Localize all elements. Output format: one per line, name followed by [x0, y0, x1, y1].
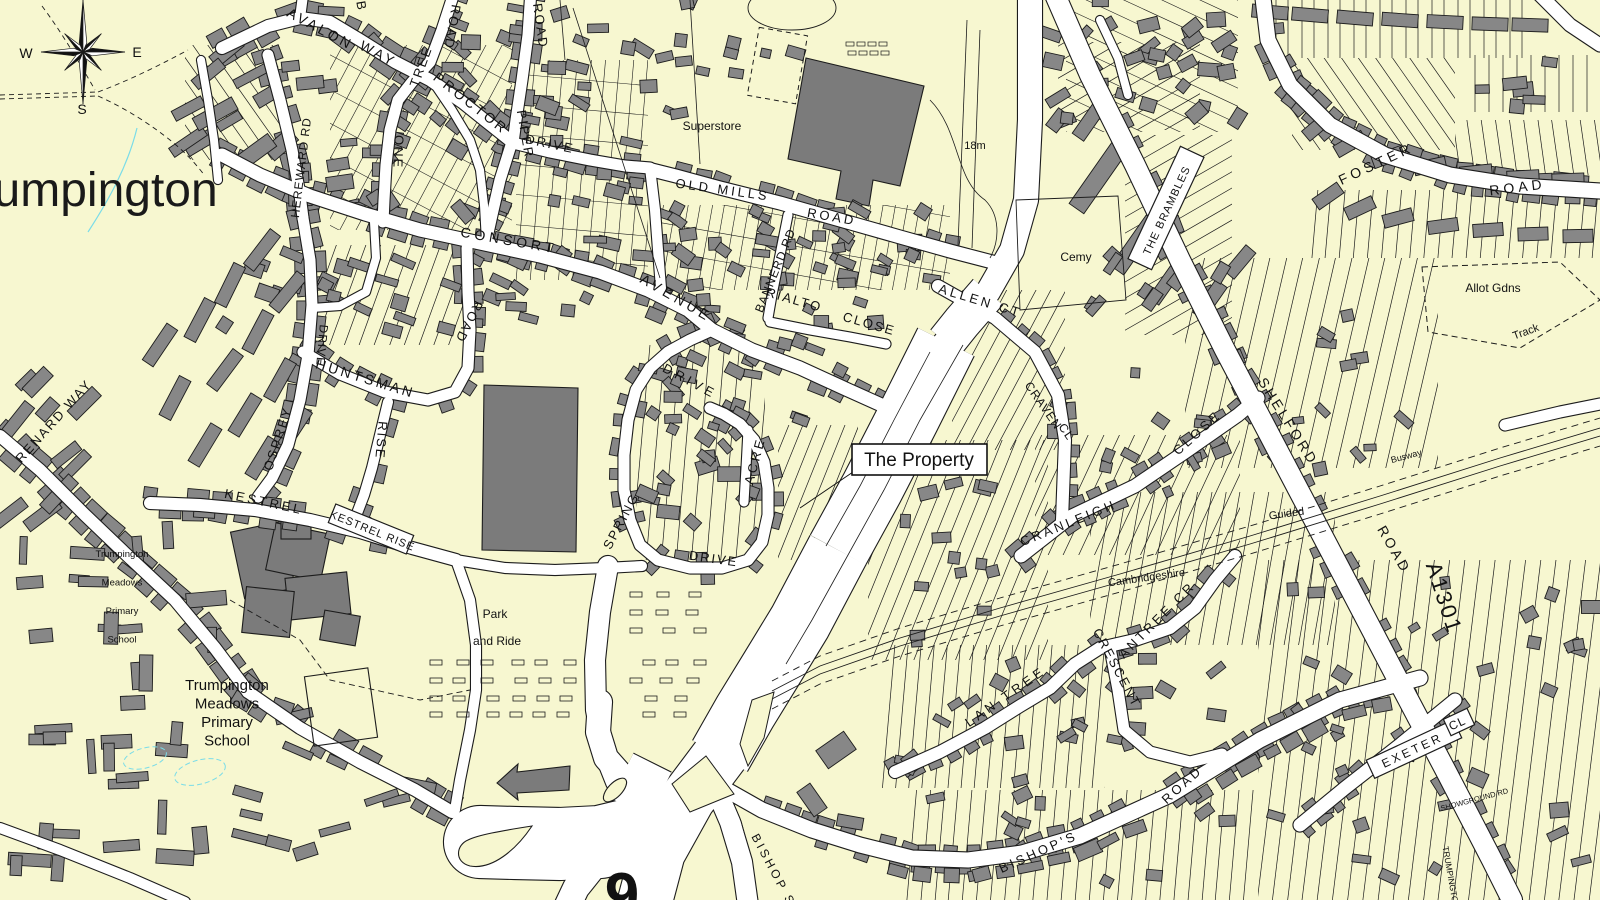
- svg-text:Primary: Primary: [106, 606, 139, 617]
- svg-text:Meadows: Meadows: [195, 696, 259, 713]
- svg-text:Cemy: Cemy: [1060, 250, 1091, 264]
- svg-text:School: School: [204, 733, 250, 750]
- svg-text:The Property: The Property: [864, 450, 974, 471]
- svg-text:School: School: [107, 635, 136, 646]
- svg-text:S: S: [77, 101, 86, 117]
- svg-text:and Ride: and Ride: [473, 634, 521, 648]
- svg-text:Primary: Primary: [201, 714, 253, 731]
- svg-text:E: E: [132, 44, 141, 60]
- svg-text:Trumpington: Trumpington: [96, 549, 149, 560]
- svg-text:Allot Gdns: Allot Gdns: [1465, 281, 1520, 295]
- svg-text:9: 9: [605, 861, 639, 900]
- svg-text:18m: 18m: [964, 140, 985, 152]
- svg-text:ONE: ONE: [390, 135, 406, 170]
- svg-text:Trumpington: Trumpington: [0, 164, 218, 217]
- svg-text:Meadows: Meadows: [102, 578, 143, 589]
- svg-text:N: N: [78, 0, 88, 3]
- svg-text:W: W: [19, 45, 33, 61]
- svg-text:Superstore: Superstore: [683, 119, 742, 133]
- svg-text:Trumpington: Trumpington: [185, 677, 269, 694]
- svg-text:Park: Park: [483, 607, 509, 621]
